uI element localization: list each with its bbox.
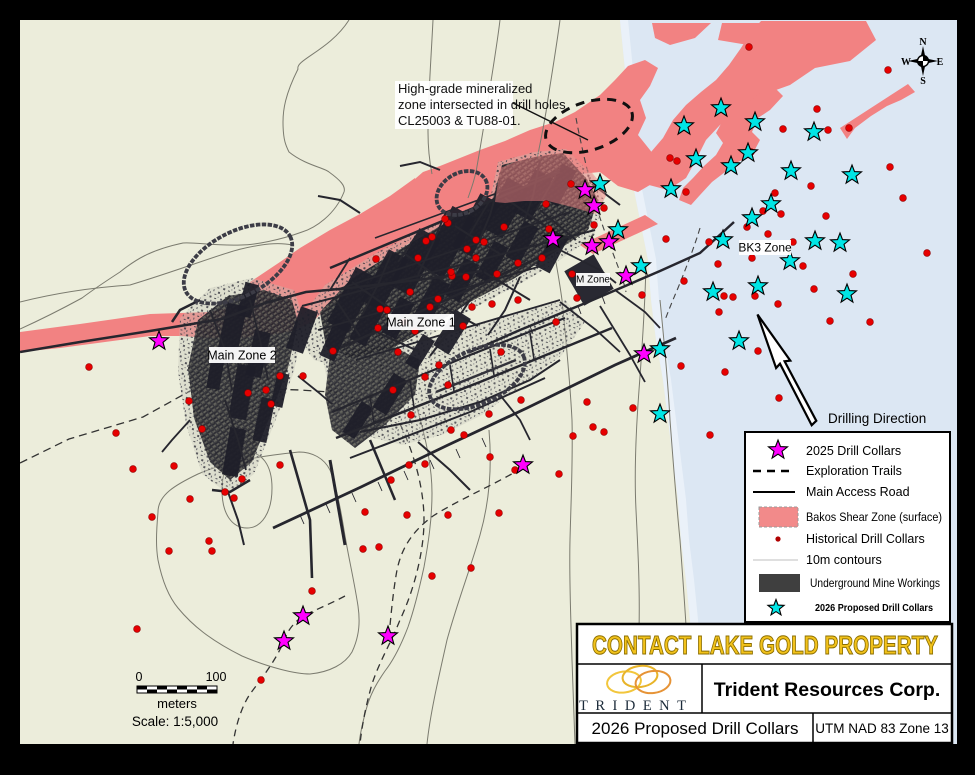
svg-text:Historical Drill Collars: Historical Drill Collars — [806, 532, 925, 546]
svg-text:Bakos Shear Zone (surface): Bakos Shear Zone (surface) — [806, 510, 942, 524]
svg-text:Main Access Road: Main Access Road — [806, 485, 910, 499]
svg-text:Main Zone 1: Main Zone 1 — [386, 316, 456, 330]
svg-text:BK3 Zone: BK3 Zone — [738, 241, 792, 255]
svg-text:Main Zone 2: Main Zone 2 — [207, 349, 277, 363]
svg-text:Exploration Trails: Exploration Trails — [806, 464, 902, 478]
svg-text:UTM NAD 83 Zone 13: UTM NAD 83 Zone 13 — [815, 721, 949, 736]
svg-text:2025 Drill Collars: 2025 Drill Collars — [806, 444, 901, 458]
svg-text:M Zone: M Zone — [576, 275, 610, 286]
svg-text:zone intersected in drill hole: zone intersected in drill holes — [398, 97, 566, 112]
svg-text:Drilling Direction: Drilling Direction — [828, 411, 926, 426]
svg-text:CL25003 & TU88-01.: CL25003 & TU88-01. — [398, 113, 521, 128]
svg-text:100: 100 — [206, 670, 227, 684]
svg-text:0: 0 — [136, 670, 143, 684]
svg-text:2026 Proposed Drill Collars: 2026 Proposed Drill Collars — [592, 719, 799, 738]
svg-text:meters: meters — [157, 696, 197, 711]
svg-text:CONTACT LAKE GOLD PROPERTY: CONTACT LAKE GOLD PROPERTY — [592, 630, 938, 660]
svg-text:W: W — [901, 57, 911, 68]
svg-text:2026 Proposed Drill Collars: 2026 Proposed Drill Collars — [815, 602, 933, 614]
svg-text:S: S — [920, 76, 926, 87]
svg-text:Underground Mine Workings: Underground Mine Workings — [810, 576, 940, 590]
svg-text:Trident Resources Corp.: Trident Resources Corp. — [714, 679, 940, 701]
svg-text:E: E — [937, 57, 944, 68]
svg-text:High-grade mineralized: High-grade mineralized — [398, 81, 532, 96]
svg-text:Scale: 1:5,000: Scale: 1:5,000 — [132, 714, 218, 729]
svg-text:10m contours: 10m contours — [806, 553, 882, 567]
svg-text:N: N — [919, 37, 927, 48]
svg-text:TRIDENT: TRIDENT — [579, 698, 694, 714]
